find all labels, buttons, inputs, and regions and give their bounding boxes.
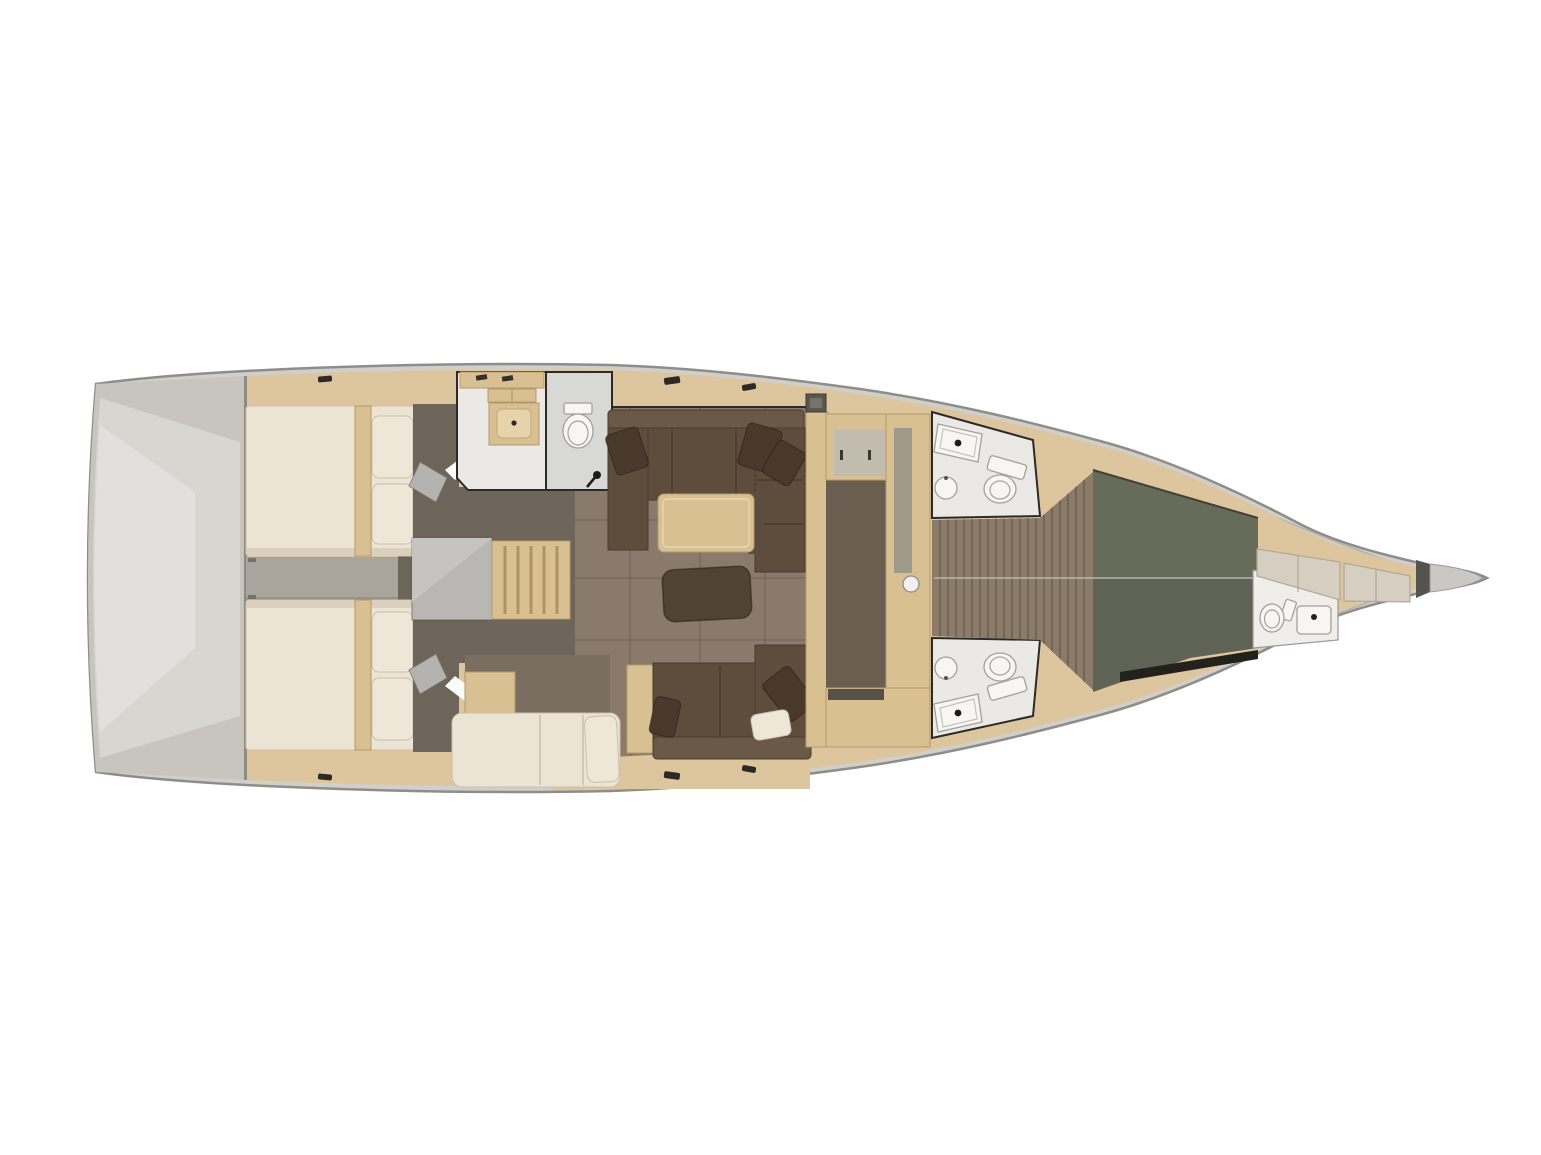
mattress-shadow <box>246 601 415 608</box>
basin-drain <box>1311 614 1317 620</box>
galley-divider-cabinet <box>806 412 828 747</box>
pillow <box>372 612 413 672</box>
pillow <box>372 678 413 740</box>
bed-shelf <box>355 406 371 556</box>
washbasin <box>935 477 957 499</box>
anchor-locker <box>1430 564 1483 592</box>
toilet-icon <box>563 414 593 448</box>
bed-shelf <box>355 600 371 750</box>
corridor-floor <box>246 557 402 601</box>
cabinet-handle <box>840 450 843 460</box>
galley-sink <box>903 576 919 592</box>
basin-drain <box>511 420 516 425</box>
toilet-tank <box>564 403 592 414</box>
sofa-backrest-bottom <box>653 737 811 759</box>
counter-inset <box>894 428 912 573</box>
engine-hatch-mark-2 <box>248 595 256 599</box>
vanity-shelf <box>460 372 544 388</box>
engine-hatch-mark-1 <box>248 558 256 562</box>
stove <box>828 689 884 700</box>
stern-platform <box>88 376 247 780</box>
deck-hatch-inner <box>810 398 822 408</box>
washbasin <box>935 657 957 679</box>
nav-station <box>452 655 620 787</box>
floorplan-svg <box>0 0 1541 1155</box>
basin-faucet <box>944 676 948 680</box>
deck-cleat <box>318 773 332 780</box>
aft-head <box>457 372 612 490</box>
bow-bulkhead <box>1416 560 1430 598</box>
settee-pillow <box>584 715 619 783</box>
shower-drain <box>955 710 962 717</box>
bow <box>1416 560 1483 598</box>
basin-faucet <box>944 476 948 480</box>
shower-drain <box>955 440 962 447</box>
cabinet-handle <box>868 450 871 460</box>
chart-table-cabinet <box>465 672 515 715</box>
galley <box>806 412 930 747</box>
companionway <box>412 538 570 620</box>
pillow <box>372 484 413 544</box>
salon-table <box>658 494 754 552</box>
sofa-arm-cabinet <box>627 665 655 753</box>
ottoman <box>662 566 753 623</box>
galley-sole <box>826 478 890 690</box>
pillow <box>372 416 413 478</box>
deck-cleat <box>318 375 332 382</box>
aft-cabin-top <box>246 404 492 556</box>
mattress-shadow <box>246 548 415 555</box>
floorplan-canvas <box>0 0 1541 1155</box>
